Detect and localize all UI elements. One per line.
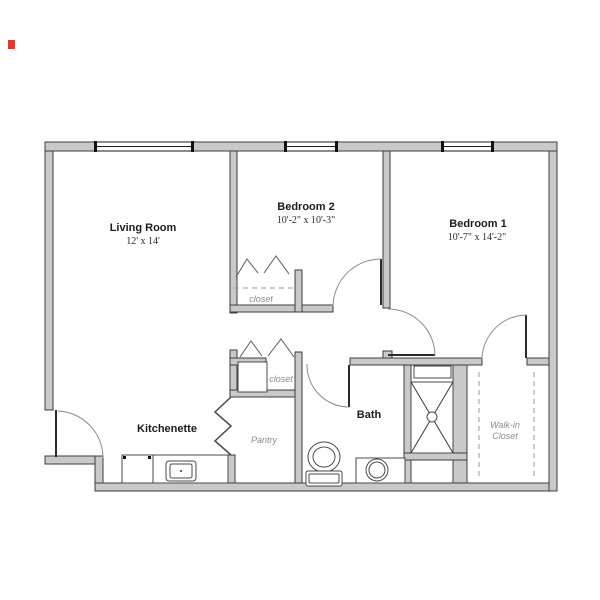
wall-step-horizontal (45, 456, 103, 464)
walkin-closet-label-line2: Closet (492, 431, 518, 441)
wall-shower-bottom (404, 453, 467, 460)
bedroom2-door (333, 259, 381, 306)
shower-drain (427, 412, 437, 422)
wall-right (549, 151, 557, 491)
bedroom2-label: Bedroom 2 (277, 201, 334, 213)
entry-door (56, 410, 103, 458)
kitchenette-fixtures (122, 455, 228, 483)
window-bedroom1 (441, 141, 494, 152)
wall-left-upper (45, 151, 53, 410)
appliance-corner-dot (148, 456, 151, 459)
wall-pantry-bath (295, 352, 302, 483)
shower-threshold (414, 366, 451, 378)
pantry-label: Pantry (251, 435, 278, 445)
hanger-icon (268, 339, 294, 357)
appliance-corner-dot (123, 456, 126, 459)
toilet (306, 442, 342, 486)
wall-bedroom2-closet-stub (295, 270, 302, 312)
kitchen-sink (166, 461, 196, 481)
hanger-icon (264, 256, 289, 274)
kitchen-appliance (122, 455, 153, 483)
window-living-room (94, 141, 194, 152)
walkin-closet-label-line1: Walk-in (490, 420, 520, 430)
bath-door (307, 364, 349, 407)
wall-walkin-top-stub (527, 358, 549, 365)
wall-bath-bedroom1 (350, 358, 482, 365)
living-room-label: Living Room (110, 222, 177, 234)
bath-vanity-sink (356, 458, 405, 483)
red-artifact-mark (8, 40, 15, 49)
bedroom1-dims: 10'-7" x 14'-2" (448, 232, 506, 243)
shower (411, 366, 453, 453)
wall-living-bedroom2 (230, 151, 237, 313)
hanger-icon (240, 341, 262, 357)
wall-bedroom2-bedroom1 (383, 151, 390, 308)
pantry-bifold-door (215, 397, 231, 455)
bedroom2-dims: 10'-2" x 10'-3" (277, 215, 335, 226)
wall-bedroom2-bottom (230, 305, 333, 312)
bath-label: Bath (357, 409, 382, 421)
bedroom1-door (388, 309, 435, 356)
floor-plan: Living Room 12' x 14' Bedroom 2 10'-2" x… (0, 0, 600, 600)
window-bedroom2 (284, 141, 338, 152)
wall-kitchenette-pantry (228, 455, 235, 483)
walkin-closet-door (482, 315, 527, 359)
hall-closet-label: closet (269, 374, 293, 384)
hanger-icon (236, 259, 258, 277)
bedroom1-label: Bedroom 1 (449, 218, 506, 230)
kitchenette-label: Kitchenette (137, 423, 197, 435)
bedroom2-closet-label: closet (249, 294, 273, 304)
hall-closet-shelf-box (238, 362, 267, 392)
floor-plan-drawing: Living Room 12' x 14' Bedroom 2 10'-2" x… (0, 0, 600, 600)
wall-shower-walkin (453, 365, 467, 483)
living-room-dims: 12' x 14' (126, 236, 160, 247)
bath-fixtures (306, 366, 453, 486)
